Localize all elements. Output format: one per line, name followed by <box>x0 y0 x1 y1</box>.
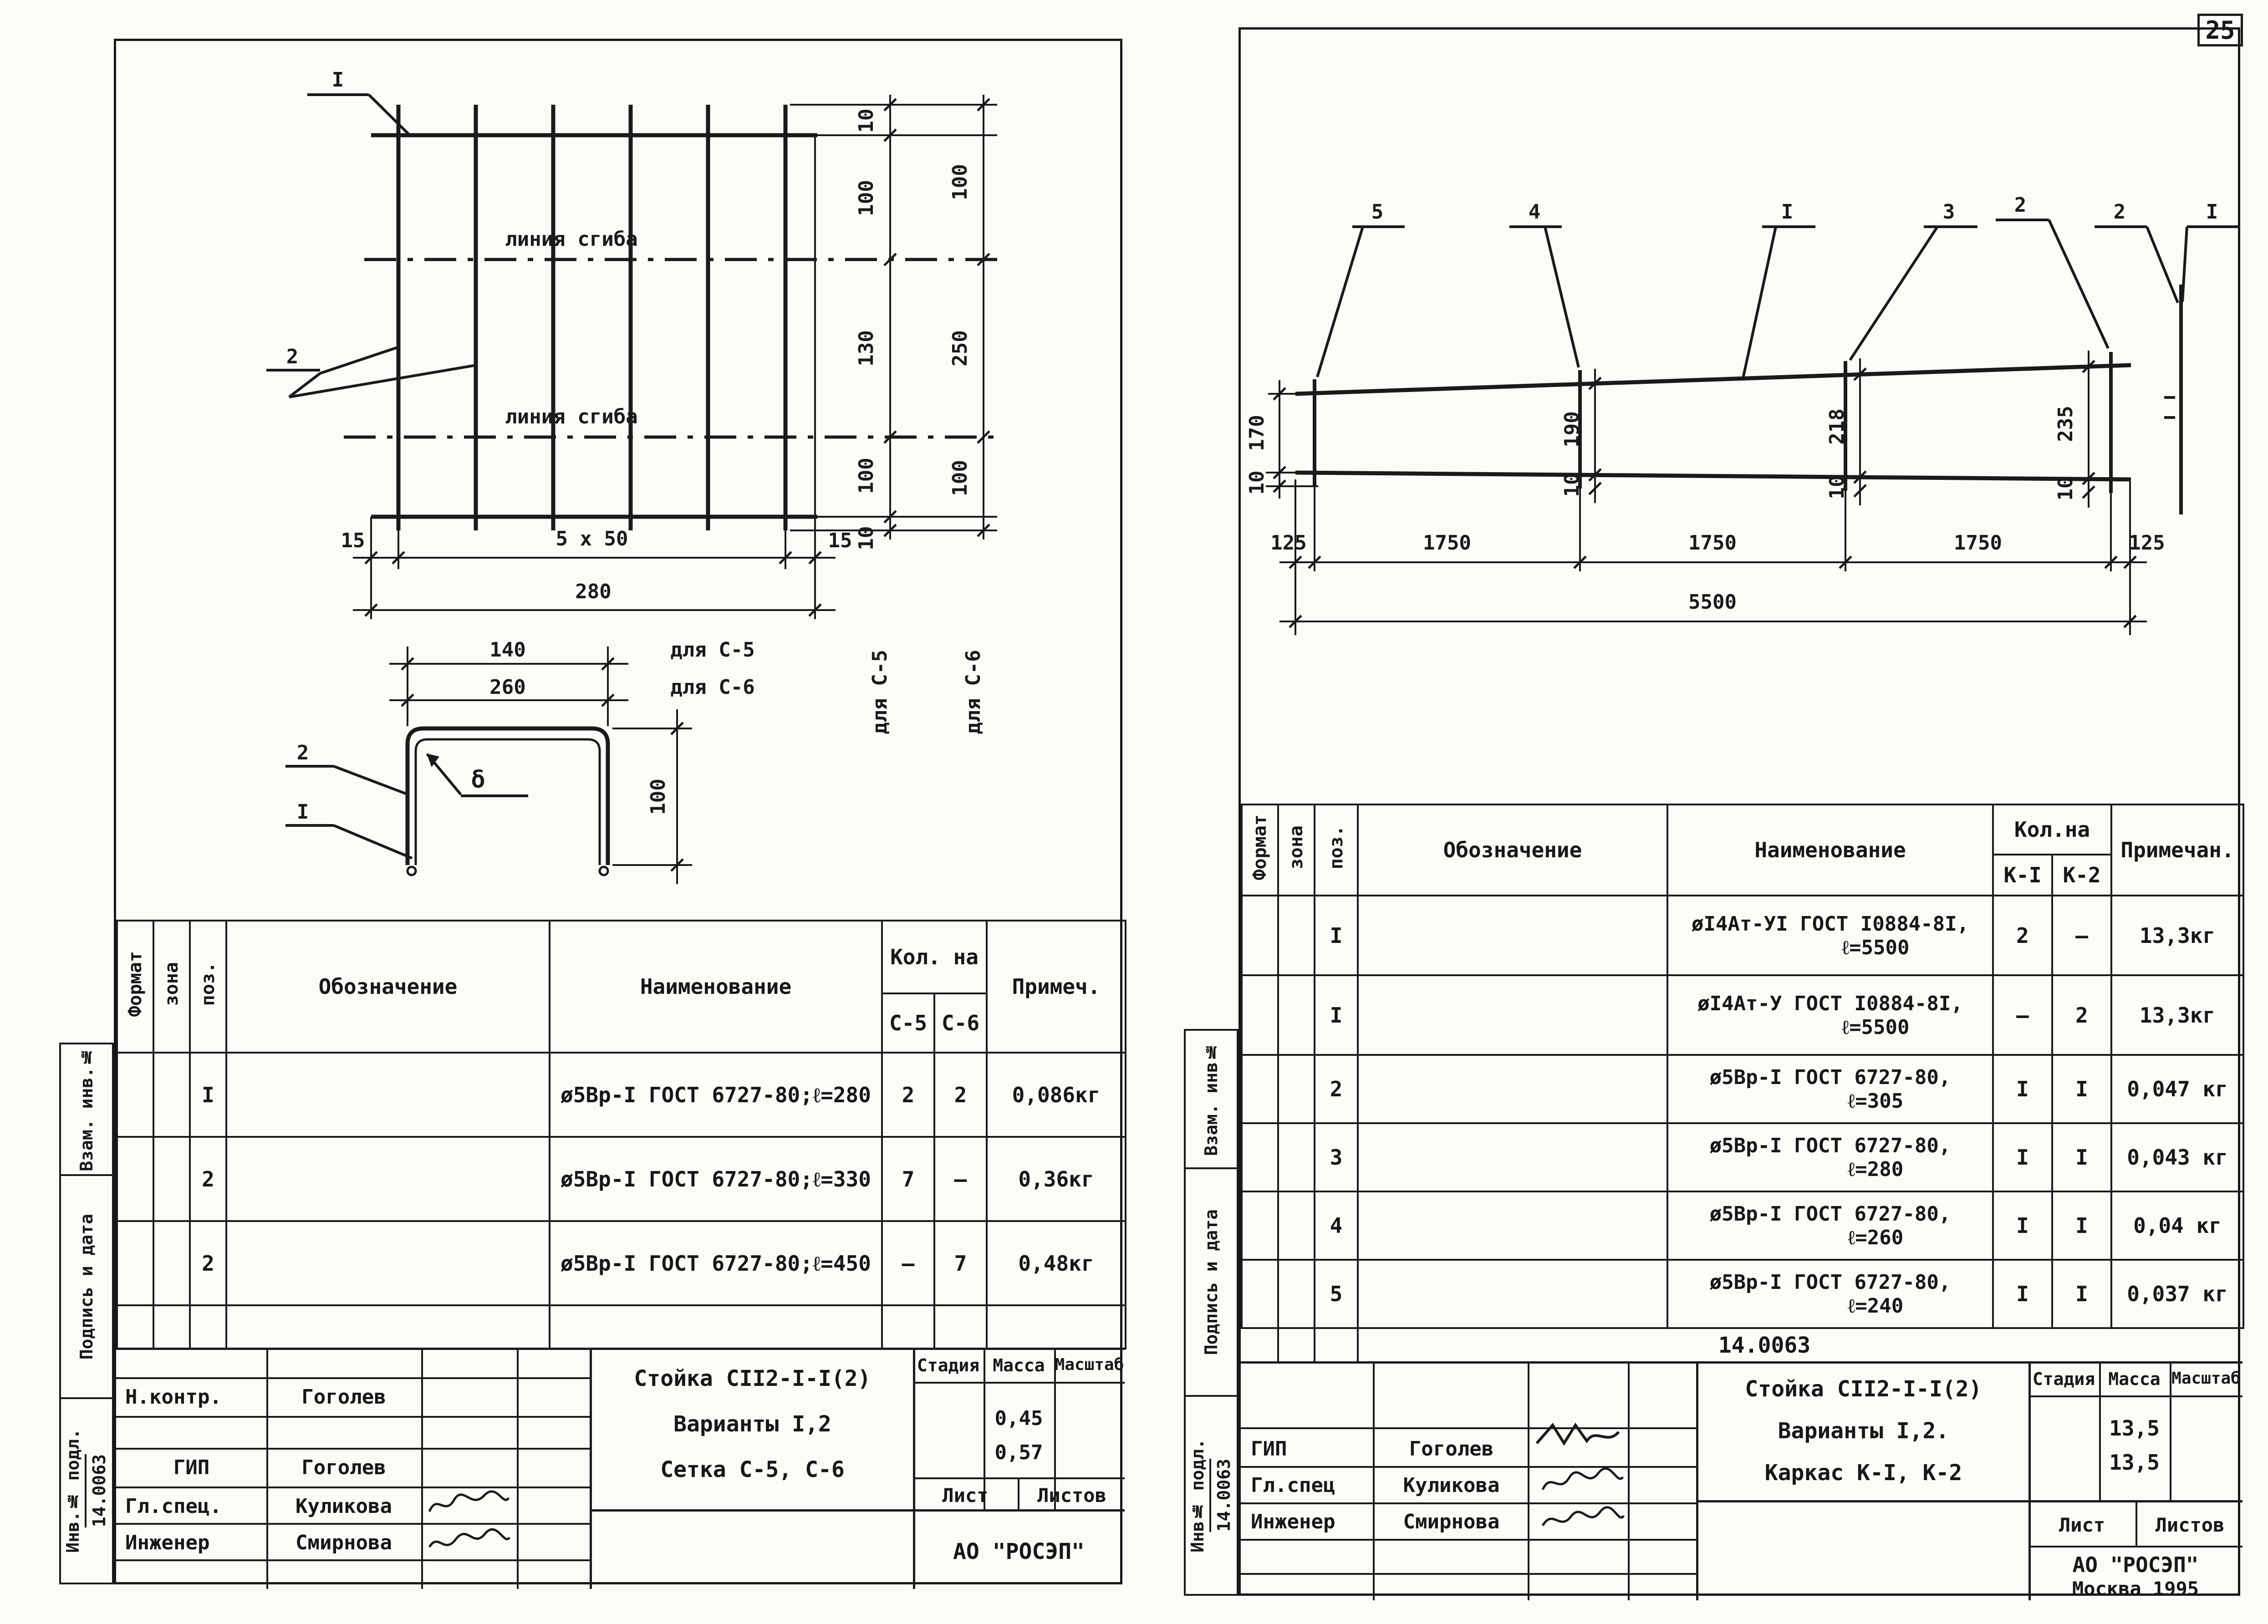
dimension-label: 5 x 50 <box>556 527 628 550</box>
dimension-label: 100 <box>948 164 972 200</box>
stage-header: Стадия <box>913 1355 984 1375</box>
table-cell: 3 <box>1315 1123 1358 1191</box>
dimension-label: 10 <box>855 109 878 133</box>
role-label: Н.контр. <box>120 1385 269 1409</box>
table-cell: I <box>1993 1055 2052 1123</box>
role-label: Гл.спец. <box>120 1495 269 1518</box>
table-cell: ø5Вр-I ГОСТ 6727-80;ℓ=280 <box>550 1053 882 1137</box>
callout: 5 <box>1371 200 1384 224</box>
table-cell: I <box>1993 1260 2052 1328</box>
dimension-label: 218 <box>1825 408 1849 444</box>
dimension-label: 1750 <box>1688 531 1737 555</box>
table-cell: øI4Ат-У ГОСТ I0884-8I, ℓ=5500 <box>1667 975 1993 1055</box>
margin-cell: Взам. инв.№ <box>61 1044 112 1174</box>
callout: 2 <box>286 345 299 368</box>
mesh-lines <box>266 95 997 619</box>
dimension-label: 170 <box>1245 415 1269 451</box>
dimension-label: 235 <box>2054 406 2077 442</box>
dimension-label: 280 <box>575 580 611 603</box>
rotated-label: Инв№ подл. <box>1188 1439 1208 1553</box>
person-name: Гоголев <box>1377 1437 1525 1461</box>
doc-number: 14.0063 <box>89 1454 109 1527</box>
dimension-label: 125 <box>2129 531 2165 555</box>
table-cell: 2 <box>1993 896 2052 975</box>
table-cell: 0,04 кг <box>2111 1191 2243 1260</box>
org-name: АО "РОСЭП" <box>2028 1553 2243 1577</box>
table-cell: 13,3кг <box>2111 896 2243 975</box>
table-row: 4 ø5Вр-I ГОСТ 6727-80, ℓ=260 I I 0,04 кг <box>1242 1191 2243 1260</box>
table-row <box>117 1305 1126 1349</box>
fold-line-label: линия сгиба <box>505 228 637 251</box>
table-cell: ø5Вр-I ГОСТ 6727-80, ℓ=260 <box>1667 1191 1993 1260</box>
table-header-cell: Формат <box>117 921 153 1053</box>
table-cell: – <box>934 1137 987 1221</box>
table-cell: I <box>2052 1123 2111 1191</box>
signature <box>426 1527 512 1558</box>
rotated-label: Подпись и дата <box>1201 1209 1221 1355</box>
table-row: 2 ø5Вр-I ГОСТ 6727-80;ℓ=330 7 – 0,36кг <box>117 1137 1126 1221</box>
table-header-cell: К-2 <box>2052 855 2111 896</box>
table-header-cell: поз. <box>190 921 226 1053</box>
right-drawing-frame: 5 4 I 3 2 2 I 170 10 190 10 218 10 235 1… <box>1241 30 2243 804</box>
callout: I <box>2206 200 2218 224</box>
table-header-cell: Наименование <box>1667 804 1993 896</box>
table-header-cell: Обозначение <box>1358 804 1667 896</box>
rotated-label: Взам. инв№ <box>1201 1042 1221 1156</box>
drawing-title-line: Сетка С-5, С-6 <box>592 1457 913 1482</box>
signature <box>426 1489 512 1521</box>
table-cell: I <box>1315 896 1358 975</box>
dimension-label: 100 <box>855 180 878 216</box>
drawing-title-line: Варианты I,2 <box>592 1411 913 1437</box>
table-cell: 2 <box>882 1053 934 1137</box>
person-name: Куликова <box>271 1495 417 1518</box>
dimension-label: 10 <box>2054 477 2077 501</box>
variant-label: для С-5 <box>868 650 892 734</box>
frame-lines <box>1295 220 2239 514</box>
table-header-cell: К-I <box>1993 855 2052 896</box>
callout: I <box>1781 200 1794 224</box>
table-header-cell: поз. <box>1315 804 1358 896</box>
table-cell: I <box>2052 1191 2111 1260</box>
role-label: ГИП <box>1244 1437 1378 1461</box>
sheets-header: Листов <box>1019 1484 1124 1507</box>
thickness-label: δ <box>471 766 485 794</box>
signature <box>1539 1504 1626 1538</box>
sheets-header: Листов <box>2137 1514 2243 1536</box>
callout: I <box>297 800 309 824</box>
mass-value: 13,5 <box>2099 1450 2170 1475</box>
doc-number: 14.0063 <box>1514 1333 2015 1358</box>
drawing-title-line: Варианты I,2. <box>1698 1418 2028 1444</box>
table-cell: I <box>2052 1260 2111 1328</box>
table-cell: – <box>1993 975 2052 1055</box>
drawing-title-line: Каркас К-I, К-2 <box>1698 1460 2028 1486</box>
role-label: Инженер <box>1244 1510 1378 1533</box>
table-cell: 0,043 кг <box>2111 1123 2243 1191</box>
table-cell: 13,3кг <box>2111 975 2243 1055</box>
table-row: 2 ø5Вр-I ГОСТ 6727-80;ℓ=450 – 7 0,48кг <box>117 1221 1126 1305</box>
role-label: Гл.спец <box>1244 1474 1378 1497</box>
table-header-cell: Кол.на <box>1993 804 2111 855</box>
dimension-label: 125 <box>1270 531 1306 555</box>
dimension-label: 15 <box>828 529 852 552</box>
table-cell: – <box>2052 896 2111 975</box>
table-cell: 5 <box>1315 1260 1358 1328</box>
right-sheet: 5 4 I 3 2 2 I 170 10 190 10 218 10 235 1… <box>1238 27 2240 1596</box>
person-name: Смирнова <box>271 1531 417 1554</box>
scale-header: Масштаб <box>1054 1355 1125 1374</box>
variant-label: для С-6 <box>670 676 754 699</box>
table-header-cell: зона <box>153 921 190 1053</box>
table-row: I øI4Ат-У ГОСТ I0884-8I, ℓ=5500 – 2 13,3… <box>1242 975 2243 1055</box>
table-cell: ø5Вр-I ГОСТ 6727-80, ℓ=280 <box>1667 1123 1993 1191</box>
dimension-label: 260 <box>489 676 525 699</box>
table-row: 5 ø5Вр-I ГОСТ 6727-80, ℓ=240 I I 0,037 к… <box>1242 1260 2243 1328</box>
rotated-label: Взам. инв.№ <box>76 1047 97 1171</box>
table-cell: 0,037 кг <box>2111 1260 2243 1328</box>
callout: 2 <box>2114 200 2126 224</box>
dimension-label: 5500 <box>1688 591 1737 614</box>
table-header-cell: Формат <box>1242 804 1278 896</box>
table-cell: 0,086кг <box>987 1053 1126 1137</box>
person-name: Гоголев <box>271 1456 417 1479</box>
doc-number-strip: 14.0063 <box>1241 1327 2243 1361</box>
org-name: АО "РОСЭП" <box>913 1539 1125 1564</box>
table-cell: I <box>190 1053 226 1137</box>
fold-line-label: линия сгиба <box>505 405 637 428</box>
table-cell: I <box>1993 1191 2052 1260</box>
dimension-label: 140 <box>489 638 525 662</box>
callout: 2 <box>2014 193 2027 217</box>
table-cell: I <box>2052 1055 2111 1123</box>
table-cell: I <box>1315 975 1358 1055</box>
mass-value: 0,45 <box>984 1407 1054 1430</box>
table-cell: 2 <box>190 1137 226 1221</box>
margin-cell: Инв.№ подл. 14.0063 <box>61 1397 112 1583</box>
table-cell: ø5Вр-I ГОСТ 6727-80, ℓ=240 <box>1667 1260 1993 1328</box>
variant-label: для С-6 <box>962 650 985 734</box>
person-name: Смирнова <box>1377 1510 1525 1533</box>
dimension-label: 10 <box>1825 475 1849 499</box>
table-cell: I <box>1993 1123 2052 1191</box>
signature <box>1532 1418 1623 1455</box>
table-cell: 0,48кг <box>987 1221 1126 1305</box>
left-title-block: Н.контр. Гоголев ГИП Гоголев Гл.спец. Ку… <box>116 1348 1125 1587</box>
dimension-label: 100 <box>855 458 878 494</box>
blueprint-scan-page: 25 Взам. инв.№ Подпись и дата Инв.№ подл… <box>0 0 2268 1624</box>
sheet-header: Лист <box>913 1484 1018 1507</box>
callout: I <box>332 68 344 92</box>
right-title-block: ГИП Гоголев Гл.спец Куликова Инженер Сми… <box>1241 1361 2243 1598</box>
doc-number: 14.0063 <box>1214 1459 1234 1532</box>
table-row: 2 ø5Вр-I ГОСТ 6727-80, ℓ=305 I I 0,047 к… <box>1242 1055 2243 1123</box>
sheet-header: Лист <box>2028 1514 2135 1536</box>
table-cell: 2 <box>934 1053 987 1137</box>
left-sheet: I 2 линия сгиба линия сгиба 10 100 130 1… <box>114 39 1122 1584</box>
role-label: Инженер <box>120 1531 269 1554</box>
table-cell: – <box>882 1221 934 1305</box>
dimension-label: 10 <box>1560 473 1584 497</box>
signature <box>1539 1466 1626 1500</box>
dimension-lines <box>353 95 989 884</box>
table-cell: 2 <box>190 1221 226 1305</box>
table-cell: 0,047 кг <box>2111 1055 2243 1123</box>
table-header-cell: Примечан. <box>2111 804 2243 896</box>
role-label: ГИП <box>120 1456 263 1479</box>
table-row: 3 ø5Вр-I ГОСТ 6727-80, ℓ=280 I I 0,043 к… <box>1242 1123 2243 1191</box>
drawing-title-line: Стойка СII2-I-I(2) <box>1698 1376 2028 1402</box>
table-header-cell: С-5 <box>882 993 934 1053</box>
table-header-cell: Примеч. <box>987 921 1126 1053</box>
mass-header: Масса <box>984 1355 1054 1375</box>
dimension-label: 15 <box>341 529 365 552</box>
table-cell: 7 <box>934 1221 987 1305</box>
variant-label: для С-5 <box>670 638 754 662</box>
table-header-cell: Кол. на <box>882 921 987 993</box>
margin-cell: Взам. инв№ <box>1186 1031 1237 1167</box>
org-city-year: Москва 1995 <box>2028 1578 2243 1600</box>
scale-header: Масштаб <box>2170 1369 2243 1388</box>
callout: 4 <box>1529 200 1541 224</box>
left-margin-strip: Взам. инв.№ Подпись и дата Инв.№ подл. 1… <box>59 1043 114 1584</box>
person-name: Гоголев <box>271 1385 417 1409</box>
rotated-label: Подпись и дата <box>76 1214 97 1359</box>
margin-cell: Подпись и дата <box>1186 1167 1237 1395</box>
mass-value: 0,57 <box>984 1441 1054 1464</box>
rotated-label: Инв.№ подл. <box>63 1429 83 1553</box>
drawing-title-line: Стойка СII2-I-I(2) <box>592 1366 913 1391</box>
table-cell: ø5Вр-I ГОСТ 6727-80, ℓ=305 <box>1667 1055 1993 1123</box>
margin-cell: Подпись и дата <box>61 1174 112 1397</box>
table-row: I øI4Ат-УI ГОСТ I0884-8I, ℓ=5500 2 – 13,… <box>1242 896 2243 975</box>
stage-header: Стадия <box>2028 1369 2099 1389</box>
margin-cell: Инв№ подл. 14.0063 <box>1186 1395 1237 1594</box>
person-name: Куликова <box>1377 1474 1525 1497</box>
dimension-label: 130 <box>855 330 878 366</box>
dimension-label: 10 <box>1245 471 1269 495</box>
table-header-cell: Обозначение <box>226 921 550 1053</box>
dimension-label: 100 <box>948 460 972 496</box>
table-header-cell: Наименование <box>550 921 882 1053</box>
table-cell: 2 <box>1315 1055 1358 1123</box>
table-cell: øI4Ат-УI ГОСТ I0884-8I, ℓ=5500 <box>1667 896 1993 975</box>
table-header-cell: зона <box>1278 804 1315 896</box>
dimension-label: 10 <box>855 526 878 550</box>
dimension-label: 1750 <box>1954 531 2002 555</box>
table-cell: 7 <box>882 1137 934 1221</box>
dimension-label: 250 <box>948 330 972 366</box>
right-spec-table: Формат зона поз. Обозначение Наименовани… <box>1241 804 2244 1329</box>
mass-header: Масса <box>2099 1369 2170 1389</box>
callout: 3 <box>1943 200 1955 224</box>
table-row: I ø5Вр-I ГОСТ 6727-80;ℓ=280 2 2 0,086кг <box>117 1053 1126 1137</box>
mass-value: 13,5 <box>2099 1416 2170 1441</box>
profile-shape <box>285 728 608 875</box>
table-cell: ø5Вр-I ГОСТ 6727-80;ℓ=450 <box>550 1221 882 1305</box>
left-drawing-mesh: I 2 линия сгиба линия сгиба 10 100 130 1… <box>116 41 1125 920</box>
right-margin-strip: Взам. инв№ Подпись и дата Инв№ подл. 14.… <box>1184 1029 1238 1596</box>
dimension-label: 190 <box>1560 411 1584 447</box>
dimension-label: 1750 <box>1423 531 1471 555</box>
left-spec-table: Формат зона поз. Обозначение Наименовани… <box>116 920 1126 1349</box>
table-cell: 0,36кг <box>987 1137 1126 1221</box>
table-cell: 2 <box>2052 975 2111 1055</box>
table-cell: ø5Вр-I ГОСТ 6727-80;ℓ=330 <box>550 1137 882 1221</box>
callout: 2 <box>297 741 309 764</box>
table-cell: 4 <box>1315 1191 1358 1260</box>
table-header-cell: С-6 <box>934 993 987 1053</box>
dimension-label: 100 <box>647 779 670 815</box>
